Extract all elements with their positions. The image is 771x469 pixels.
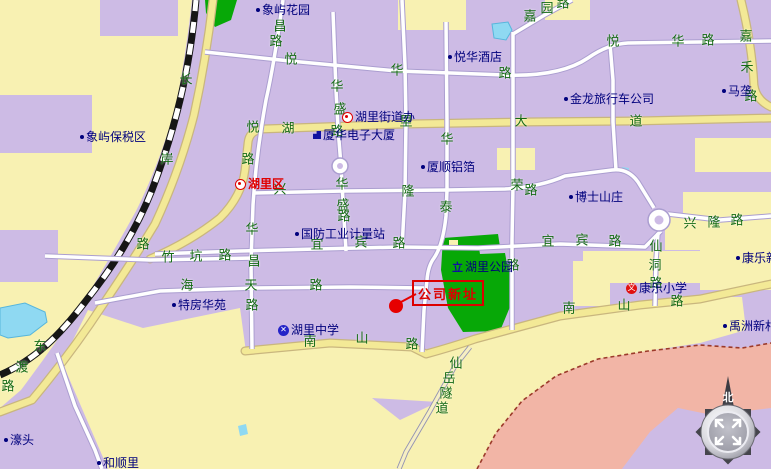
road-label: 东 [33,341,46,354]
road-label: 岳 [442,373,455,386]
road-label: 宜 [541,236,554,249]
poi-label-text: 禹洲新村 [729,320,771,332]
road-label: 坑 [189,251,202,264]
poi-label[interactable]: ✕湖里中学 [278,324,339,336]
road-label: 昌 [247,256,260,269]
road-label: 湖 [281,123,294,136]
poi-label[interactable]: 象屿花园 [256,4,310,16]
road-label: 华 [335,179,348,192]
road-label: 南 [562,303,575,316]
poi-dot-icon [564,97,568,101]
road-label: 泰 [439,202,452,215]
road-label: 嘉 [739,31,752,44]
road-label: 路 [670,296,683,309]
road-label: 洞 [648,260,661,273]
road-label: 悦 [606,36,619,49]
compass-north-label: 北 [723,389,734,405]
poi-label-text: 国防工业计量站 [301,228,385,240]
poi-label-text: 湖里街道办 [355,111,415,123]
poi-label[interactable]: 禹洲新村 [723,320,771,332]
poi-label[interactable]: 湖里街道办 [342,111,415,123]
poi-dot-icon [723,324,727,328]
road-label: 海 [180,280,193,293]
poi-label-text: 特房华苑 [178,299,226,311]
road-label: 路 [498,68,511,81]
school-icon: 文 [626,283,637,294]
road-label: 荣 [510,180,523,193]
poi-label[interactable]: 康乐新村 [736,252,771,264]
road-label: 道 [435,403,448,416]
road-label: 昌 [273,21,286,34]
poi-label-text: 悦华酒店 [454,51,502,63]
poi-dot-icon [80,135,84,139]
road-label: 华 [440,134,453,147]
road-label: 悦 [284,54,297,67]
road-label: 隆 [707,217,720,230]
road-label: 路 [405,339,418,352]
road-label: 路 [241,154,254,167]
poi-label-text: 湖里公园 [465,261,513,273]
school-icon: ✕ [278,325,289,336]
road-label: 路 [608,236,621,249]
poi-dot-icon [97,461,101,465]
poi-label[interactable]: 文康乐小学 [626,282,687,294]
poi-dot-icon [256,8,260,12]
road-label: 南 [303,336,316,349]
poi-label[interactable]: 濠头 [4,434,34,446]
road-label: 路 [730,215,743,228]
road-label: 渡 [15,362,28,375]
poi-label[interactable]: 厦华电子大厦 [313,129,395,141]
road-label: 大 [514,116,527,129]
road-label: 路 [269,36,282,49]
road-label: 禾 [740,62,753,75]
target-box[interactable]: 公司新址 [412,280,484,306]
poi-label-text: 厦华电子大厦 [323,129,395,141]
road-label: 仙 [449,358,462,371]
poi-label-text: 康乐小学 [639,282,687,294]
road-label: 华 [390,65,403,78]
poi-label[interactable]: 湖里区 [235,178,284,190]
poi-label[interactable]: 金龙旅行车公司 [564,93,654,105]
poi-label[interactable]: 立湖里公园 [452,261,513,273]
poi-label[interactable]: 马垄 [722,85,752,97]
road-label: 竹 [161,252,174,265]
poi-dot-icon [736,256,740,260]
government-icon [342,112,353,123]
poi-dot-icon [421,165,425,169]
poi-label-text: 象屿保税区 [86,131,146,143]
compass-inner [708,412,748,452]
road-label: 华 [330,81,343,94]
poi-label-text: 金龙旅行车公司 [570,93,654,105]
road-label: 路 [337,211,350,224]
map-canvas[interactable]: 长岸路东渡路昌路悦华路悦华路嘉园路嘉禾路华盛路华盛路悦湖路里大道华荣路兴隆泰兴隆… [0,0,771,469]
road-label: 岸 [160,154,173,167]
road-label: 路 [392,238,405,251]
target-dot[interactable] [389,299,403,313]
poi-label-text: 康乐新村 [742,252,771,264]
road-label: 长 [179,74,192,87]
road-label: 天 [244,280,257,293]
poi-label[interactable]: 特房华苑 [172,299,226,311]
poi-label-text: 博士山庄 [575,191,623,203]
poi-dot-icon [4,438,8,442]
poi-dot-icon [722,89,726,93]
road-label: 路 [136,239,149,252]
road-label: 道 [629,116,642,129]
road-label: 隧 [439,388,452,401]
building-icon [313,131,321,139]
government-icon [235,179,246,190]
poi-label[interactable]: 象屿保税区 [80,131,146,143]
poi-label-text: 濠头 [10,434,34,446]
poi-dot-icon [172,303,176,307]
road-label: 华 [245,224,258,237]
target-label: 公司新址 [418,284,478,303]
road-label: 兴 [683,218,696,231]
poi-dot-icon [295,232,299,236]
road-label: 悦 [246,122,259,135]
road-label: 路 [524,185,537,198]
road-label: 路 [245,300,258,313]
road-label: 隆 [401,186,414,199]
road-label: 路 [218,250,231,263]
road-label: 路 [556,0,569,11]
poi-label[interactable]: 厦顺铝箔 [421,161,475,173]
road-label: 华 [671,36,684,49]
poi-label-text: 象屿花园 [262,4,310,16]
monument-icon: 立 [452,262,463,273]
road-label: 园 [540,3,553,16]
road-label: 山 [617,300,630,313]
poi-label[interactable]: 博士山庄 [569,191,623,203]
poi-dot-icon [569,195,573,199]
poi-label-text: 马垄 [728,85,752,97]
road-label: 路 [309,280,322,293]
poi-label-text: 湖里区 [248,178,284,190]
poi-label-text: 和顺里 [103,457,139,469]
poi-dot-icon [448,55,452,59]
poi-label[interactable]: 和顺里 [97,457,139,469]
road-label: 路 [1,381,14,394]
road-label: 宾 [575,235,588,248]
road-label: 山 [355,333,368,346]
label-layer: 长岸路东渡路昌路悦华路悦华路嘉园路嘉禾路华盛路华盛路悦湖路里大道华荣路兴隆泰兴隆… [0,0,771,469]
poi-label-text: 湖里中学 [291,324,339,336]
road-label: 嘉 [523,11,536,24]
poi-label-text: 厦顺铝箔 [427,161,475,173]
poi-label[interactable]: 国防工业计量站 [295,228,385,240]
road-label: 路 [701,35,714,48]
road-label: 仙 [649,241,662,254]
poi-label[interactable]: 悦华酒店 [448,51,502,63]
